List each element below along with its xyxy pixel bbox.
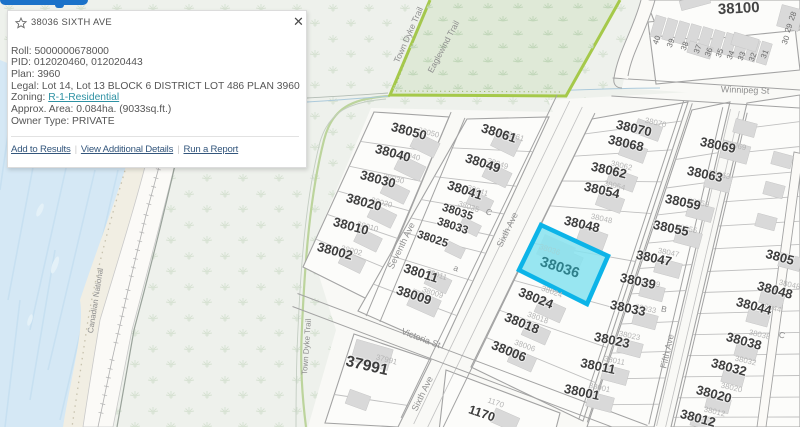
svg-text:38100: 38100 (717, 0, 760, 18)
svg-text:Winnipeg St: Winnipeg St (721, 84, 770, 96)
